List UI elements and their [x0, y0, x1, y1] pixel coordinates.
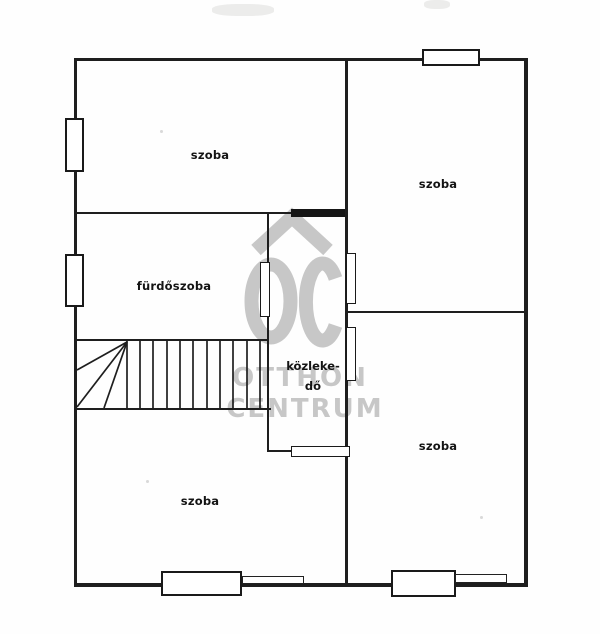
door-bottom-right-room [346, 327, 356, 381]
room-label-top-left: szoba [191, 148, 229, 162]
window-left-lower [65, 254, 84, 307]
door-top-right-room [346, 253, 356, 304]
wall-right-rooms-divider [347, 311, 526, 313]
watermark-letter-c [306, 264, 336, 341]
door-bathroom [260, 262, 270, 317]
wall-corridor-left [267, 212, 270, 452]
room-label-top-right: szoba [419, 177, 457, 191]
wall-outer-right [524, 58, 528, 587]
corridor-label-line2: dő [286, 376, 340, 396]
otthon-centrum-watermark: OTTHON CENTRUM [0, 0, 600, 634]
wall-center-vertical [345, 58, 348, 585]
window-bottom-right [391, 570, 456, 597]
room-label-bottom-left: szoba [181, 494, 219, 508]
window-sill-bottom-right [455, 574, 507, 583]
corridor-label-line1: közleke- [286, 356, 340, 376]
room-label-corridor: közleke- dő [286, 356, 340, 396]
doorway-top-left-room [291, 209, 345, 217]
watermark-letter-o [252, 265, 291, 338]
doorway-bottom-left-room [291, 446, 350, 457]
floor-plan-page: OC OTTHON CENTRUM [0, 0, 600, 634]
window-top-right [422, 49, 480, 66]
window-left-upper [65, 118, 84, 172]
staircase [74, 339, 272, 409]
room-label-bottom-right: szoba [419, 439, 457, 453]
window-bottom-left [161, 571, 242, 596]
window-sill-bottom-left [242, 576, 304, 584]
room-label-bathroom: fürdőszoba [137, 279, 211, 293]
